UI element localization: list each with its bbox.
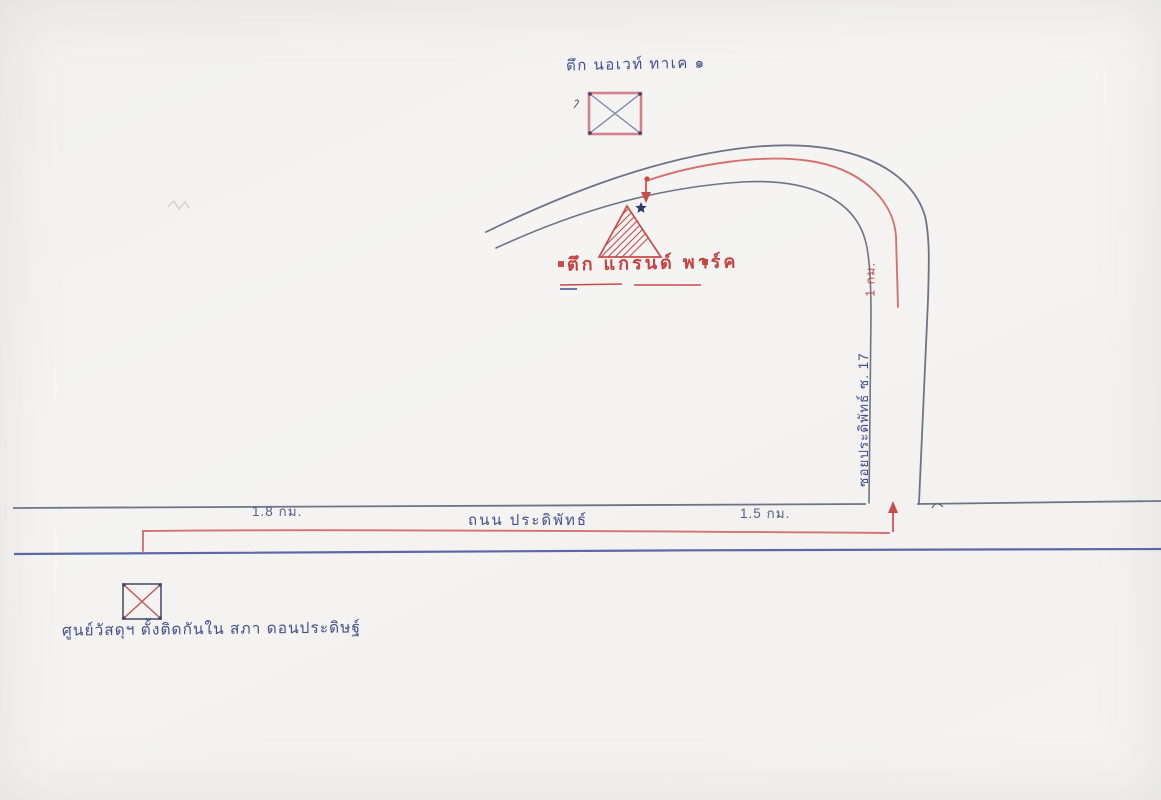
- corner-dot: [122, 616, 125, 619]
- distance-label-left: 1.8 กม.: [252, 505, 302, 520]
- small-pen-mark: [574, 100, 578, 108]
- box-cross-lines: [590, 94, 640, 133]
- route-start-dot: [644, 176, 649, 181]
- vertical-road-name: ซอยประดิพัทธ์ ซ. 17: [857, 352, 872, 487]
- horizontal-road-top-edge-left: [13, 504, 866, 508]
- vertical-road-distance: 1 กม.: [864, 262, 878, 297]
- top-landmark-label: ตึก นอเวท์ ทาเค ๑: [566, 56, 706, 75]
- corner-dot: [588, 131, 592, 135]
- top-landmark-marker: [574, 92, 642, 135]
- red-underline: [560, 284, 701, 285]
- route-red-horizontal: [143, 530, 889, 551]
- horizontal-road-bottom-edge: [14, 549, 1161, 554]
- corner-dot: [638, 131, 642, 135]
- horizontal-road-name: ถนน ประดิพัทธ์: [468, 513, 588, 530]
- bottom-landmark-marker: [122, 583, 161, 619]
- center-landmark-label: ตึก แกรนด์ พาร์ค: [567, 253, 739, 276]
- corner-dot: [158, 583, 161, 586]
- asterisk-mark-left: [558, 261, 564, 267]
- corner-dot: [122, 583, 125, 586]
- box-cross-lines: [124, 585, 160, 618]
- arrow-icon: [888, 501, 898, 513]
- bottom-landmark-label: ศูนย์วัสดุฯ ตั้งติดกันใน สภา ดอนประดิษฐ์: [62, 619, 361, 639]
- curved-road-inner-edge: [496, 182, 871, 503]
- scan-artifact-squiggle: [168, 201, 189, 209]
- star-icon: [635, 202, 646, 213]
- scanned-hand-drawn-map: ตึก นอเวท์ ทาเค ๑ ตึก แกรนด์ พาร์ค ถนน ป…: [0, 0, 1161, 800]
- corner-dot: [588, 92, 592, 96]
- corner-dot: [158, 616, 161, 619]
- corner-dot: [638, 92, 642, 96]
- map-drawing: [0, 0, 1161, 800]
- horizontal-road-top-edge-right: [917, 501, 1161, 504]
- distance-label-right: 1.5 กม.: [740, 507, 790, 522]
